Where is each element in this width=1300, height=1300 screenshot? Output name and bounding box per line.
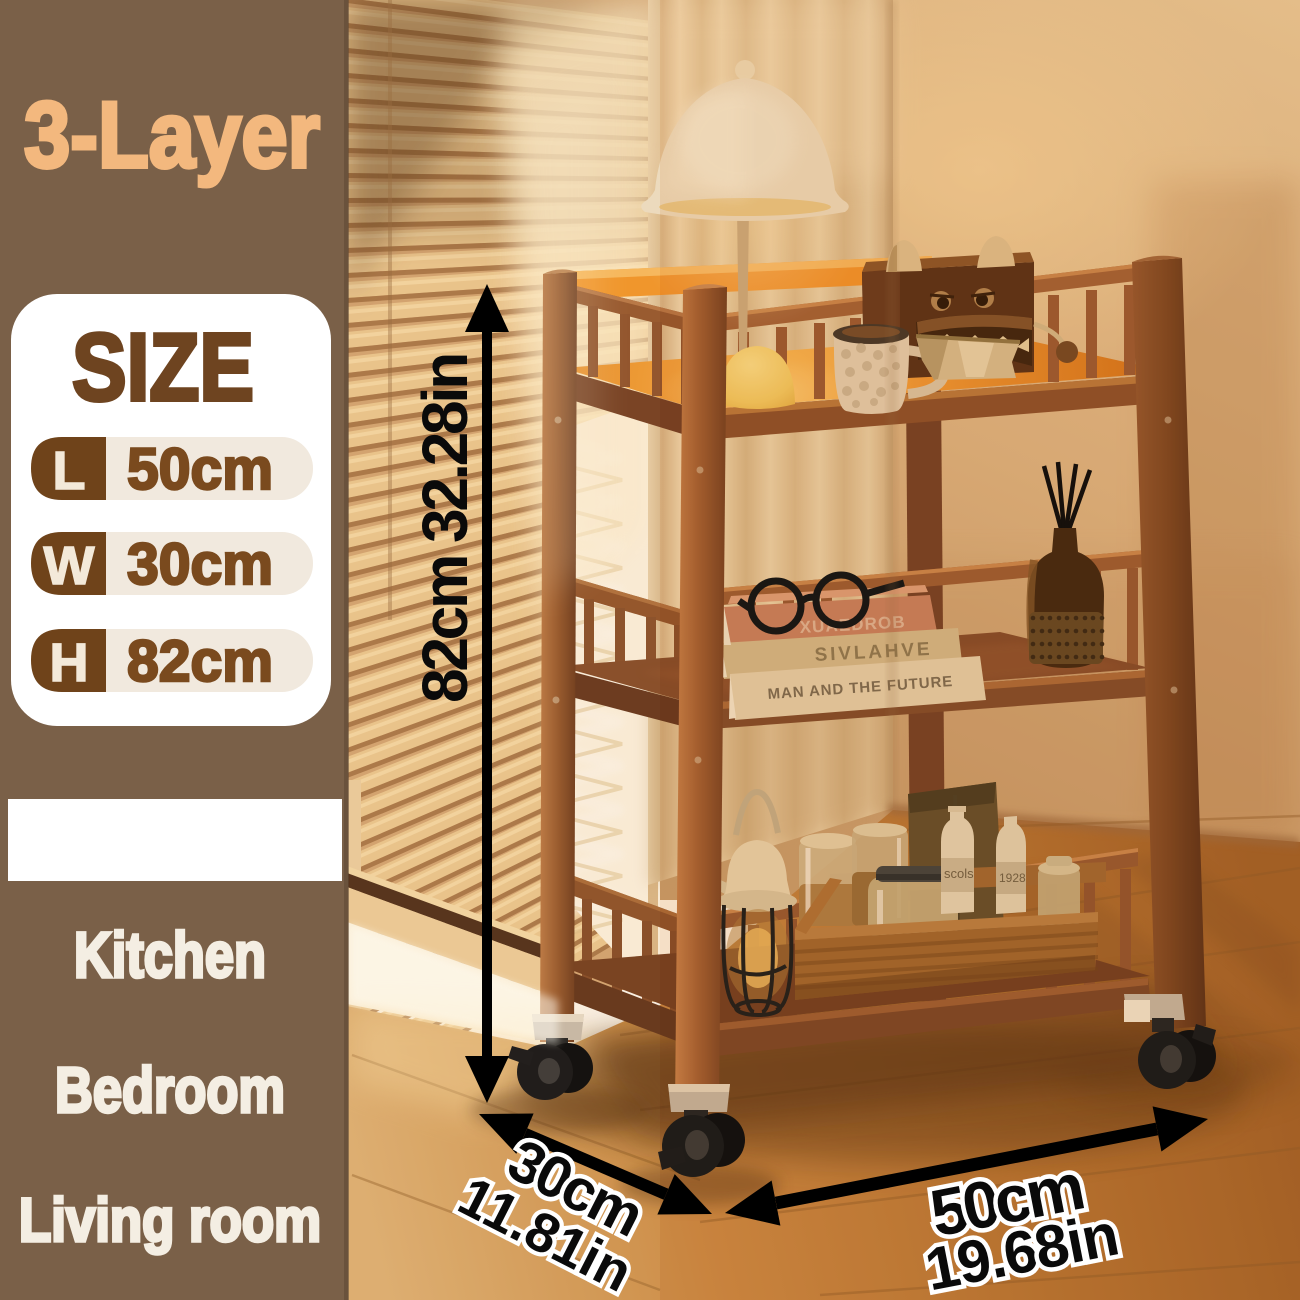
svg-text:82cm: 82cm: [127, 629, 273, 694]
svg-text:3-Layer: 3-Layer: [24, 82, 320, 187]
svg-text:W: W: [44, 536, 95, 596]
svg-text:Living room: Living room: [19, 1186, 321, 1254]
svg-text:50cm: 50cm: [127, 437, 273, 502]
svg-text:30cm: 30cm: [127, 532, 273, 597]
svg-text:H: H: [50, 633, 89, 693]
svg-text:82cm 32.28in: 82cm 32.28in: [409, 355, 481, 703]
svg-text:Bedroom: Bedroom: [55, 1054, 285, 1126]
svg-text:L: L: [53, 441, 86, 501]
svg-text:Kitchen: Kitchen: [74, 919, 266, 991]
svg-text:SIZE: SIZE: [72, 314, 254, 421]
